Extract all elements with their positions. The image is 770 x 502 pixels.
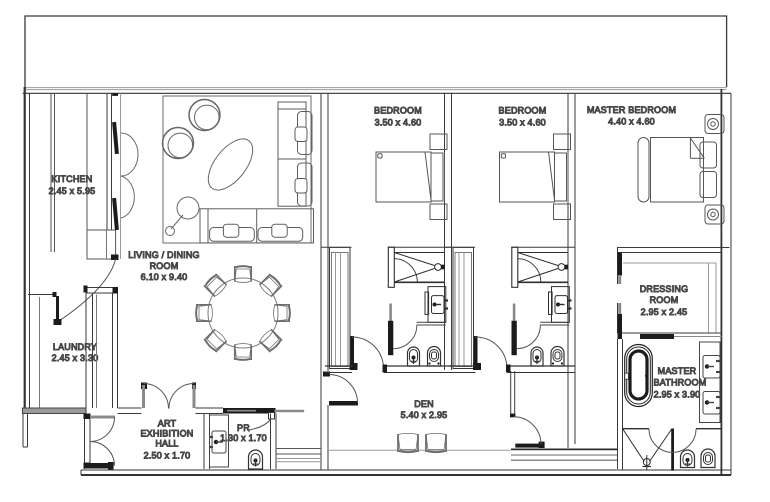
svg-text:2.45 x 3.30: 2.45 x 3.30 bbox=[52, 353, 99, 363]
svg-text:BATHROOM: BATHROOM bbox=[654, 378, 707, 388]
svg-text:1.30 x 1.70: 1.30 x 1.70 bbox=[220, 433, 267, 443]
svg-text:5.40 x 2.95: 5.40 x 2.95 bbox=[401, 410, 448, 420]
svg-text:2.45 x 5.95: 2.45 x 5.95 bbox=[49, 186, 96, 196]
svg-text:BEDROOM: BEDROOM bbox=[374, 106, 422, 116]
svg-text:DRESSING: DRESSING bbox=[640, 284, 689, 294]
svg-text:2.95 x 3.90: 2.95 x 3.90 bbox=[654, 390, 701, 400]
svg-text:ROOM: ROOM bbox=[650, 295, 679, 305]
svg-text:6.10 x 9.40: 6.10 x 9.40 bbox=[141, 272, 188, 282]
svg-text:EXHIBITION: EXHIBITION bbox=[140, 429, 193, 439]
svg-text:MASTER BEDROOM: MASTER BEDROOM bbox=[587, 105, 676, 115]
svg-text:3.50 x 4.60: 3.50 x 4.60 bbox=[375, 118, 422, 128]
svg-text:LAUNDRY: LAUNDRY bbox=[53, 342, 97, 352]
svg-text:KITCHEN: KITCHEN bbox=[52, 174, 93, 184]
svg-text:ART: ART bbox=[158, 419, 177, 429]
svg-text:DEN: DEN bbox=[414, 399, 434, 409]
svg-text:4.40 x 4.60: 4.40 x 4.60 bbox=[608, 117, 655, 127]
svg-text:PR: PR bbox=[237, 423, 250, 433]
svg-text:3.50 x 4.60: 3.50 x 4.60 bbox=[499, 118, 546, 128]
svg-text:LIVING / DINING: LIVING / DINING bbox=[128, 250, 200, 260]
svg-text:ROOM: ROOM bbox=[150, 261, 179, 271]
svg-text:2.95 x 2.45: 2.95 x 2.45 bbox=[641, 307, 688, 317]
svg-text:HALL: HALL bbox=[155, 439, 178, 449]
svg-text:BEDROOM: BEDROOM bbox=[499, 106, 547, 116]
svg-text:2.50 x 1.70: 2.50 x 1.70 bbox=[144, 451, 191, 461]
svg-text:MASTER: MASTER bbox=[658, 366, 697, 376]
